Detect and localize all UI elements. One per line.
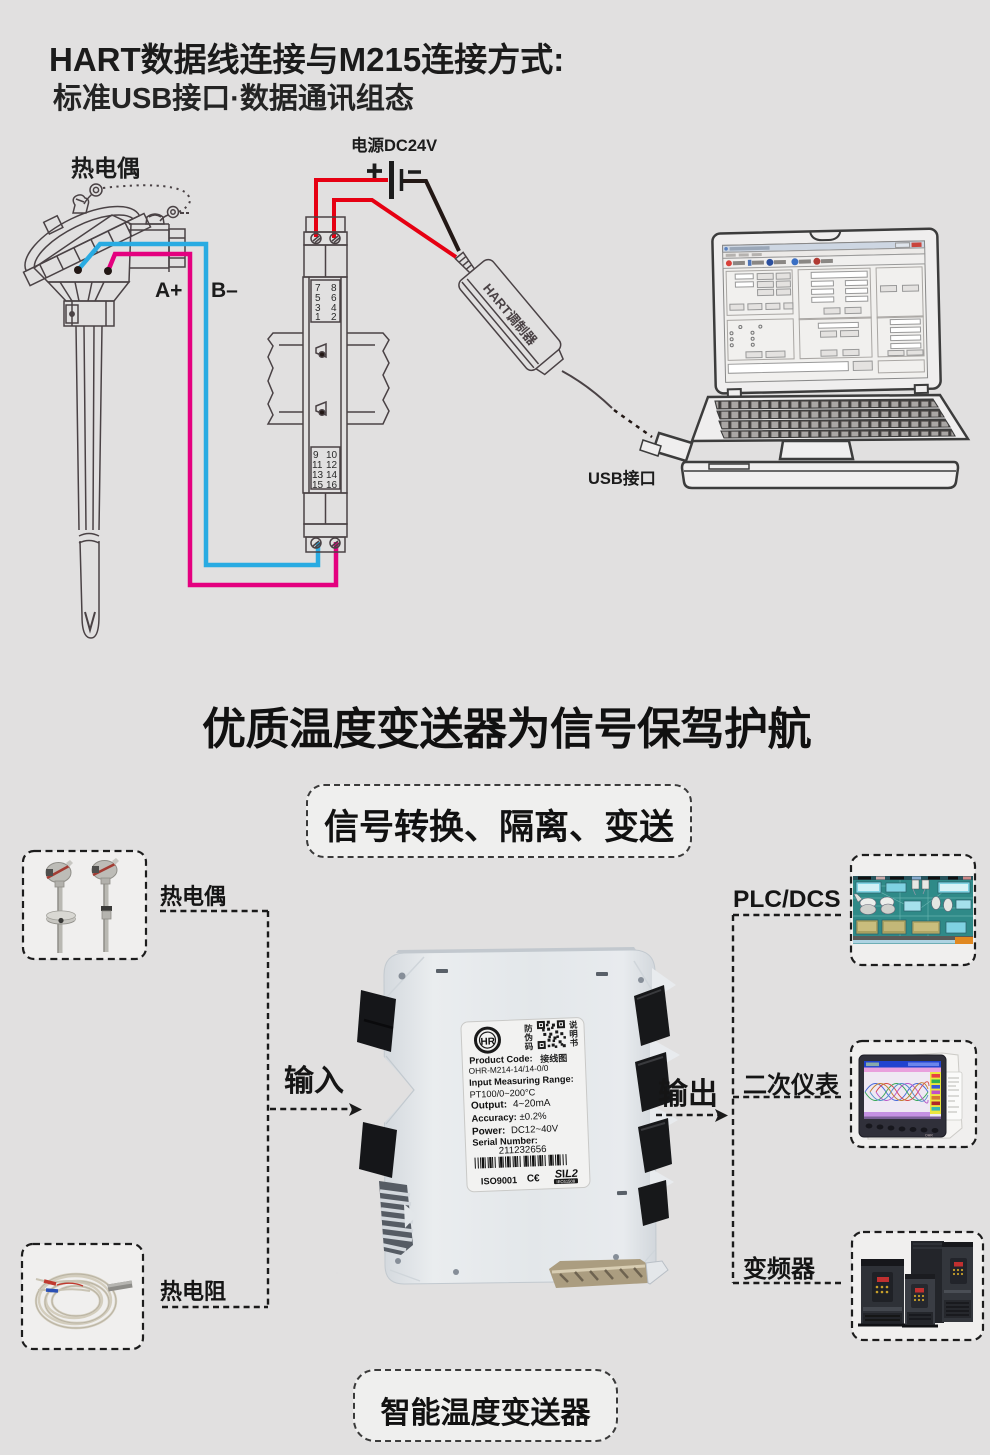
svg-text:B–: B– — [211, 279, 238, 302]
svg-text:2: 2 — [331, 312, 337, 323]
svg-text:码: 码 — [525, 1041, 534, 1051]
svg-text:热电偶: 热电偶 — [71, 155, 140, 181]
svg-text:热电偶: 热电偶 — [160, 884, 226, 909]
svg-text:输入: 输入 — [284, 1065, 344, 1098]
svg-text:1: 1 — [315, 312, 321, 323]
svg-text:Accuracy:: Accuracy: — [471, 1111, 517, 1124]
svg-text:16: 16 — [326, 480, 338, 491]
svg-text:211232656: 211232656 — [499, 1144, 547, 1157]
svg-text:HR: HR — [480, 1036, 496, 1048]
svg-text:Output:: Output: — [471, 1099, 507, 1111]
svg-text:15: 15 — [312, 480, 324, 491]
svg-text:ISO9001: ISO9001 — [481, 1175, 518, 1186]
svg-text:OHR: OHR — [925, 1134, 933, 1138]
svg-text:4~20mA: 4~20mA — [513, 1098, 551, 1110]
svg-text:二次仪表: 二次仪表 — [743, 1072, 840, 1099]
svg-text:C€: C€ — [527, 1173, 541, 1184]
svg-text:A+: A+ — [155, 279, 182, 302]
svg-text:电源DC24V: 电源DC24V — [351, 135, 437, 155]
svg-text:±0.2%: ±0.2% — [519, 1111, 547, 1123]
svg-text:USB接口: USB接口 — [588, 468, 656, 488]
svg-text:变频器: 变频器 — [743, 1255, 816, 1283]
svg-text:书: 书 — [569, 1038, 578, 1048]
svg-text:DC12~40V: DC12~40V — [511, 1123, 559, 1136]
svg-text:PLC/DCS: PLC/DCS — [733, 886, 841, 913]
svg-text:IEC61508: IEC61508 — [556, 1179, 575, 1185]
svg-text:热电阻: 热电阻 — [160, 1279, 226, 1304]
svg-text:输出: 输出 — [658, 1078, 718, 1111]
